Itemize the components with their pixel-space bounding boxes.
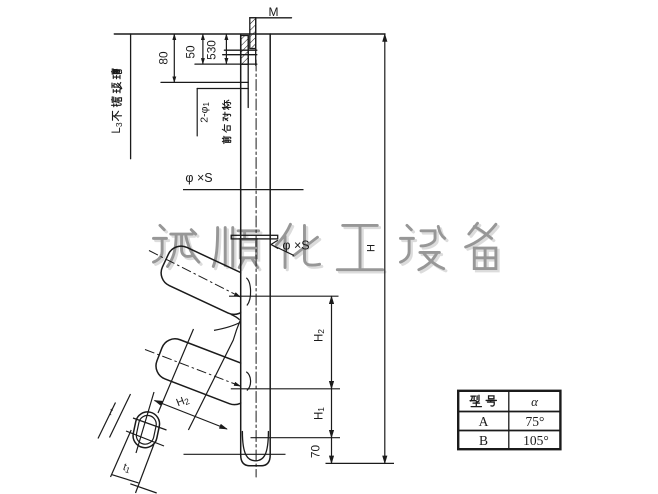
- svg-text:H1: H1: [314, 407, 327, 420]
- svg-text:80: 80: [157, 51, 171, 65]
- svg-text:H2: H2: [175, 393, 192, 409]
- svg-text:M: M: [269, 5, 279, 19]
- svg-text:B: B: [479, 433, 488, 448]
- svg-text:t: t: [107, 406, 114, 418]
- svg-text:105°: 105°: [523, 433, 549, 448]
- svg-text:530: 530: [205, 40, 219, 60]
- svg-text:70: 70: [309, 445, 323, 459]
- svg-text:H2: H2: [314, 329, 327, 342]
- svg-text:A: A: [479, 414, 489, 429]
- svg-text:t1: t1: [121, 461, 133, 475]
- svg-text:φ ×S: φ ×S: [282, 239, 309, 253]
- svg-text:α: α: [531, 394, 539, 409]
- svg-text:75°: 75°: [526, 414, 545, 429]
- svg-text:L3: L3: [111, 122, 124, 133]
- svg-text:φ ×S: φ ×S: [185, 171, 212, 185]
- svg-text:2-φ1: 2-φ1: [199, 102, 212, 123]
- svg-text:H: H: [366, 244, 378, 252]
- svg-text:50: 50: [184, 45, 198, 59]
